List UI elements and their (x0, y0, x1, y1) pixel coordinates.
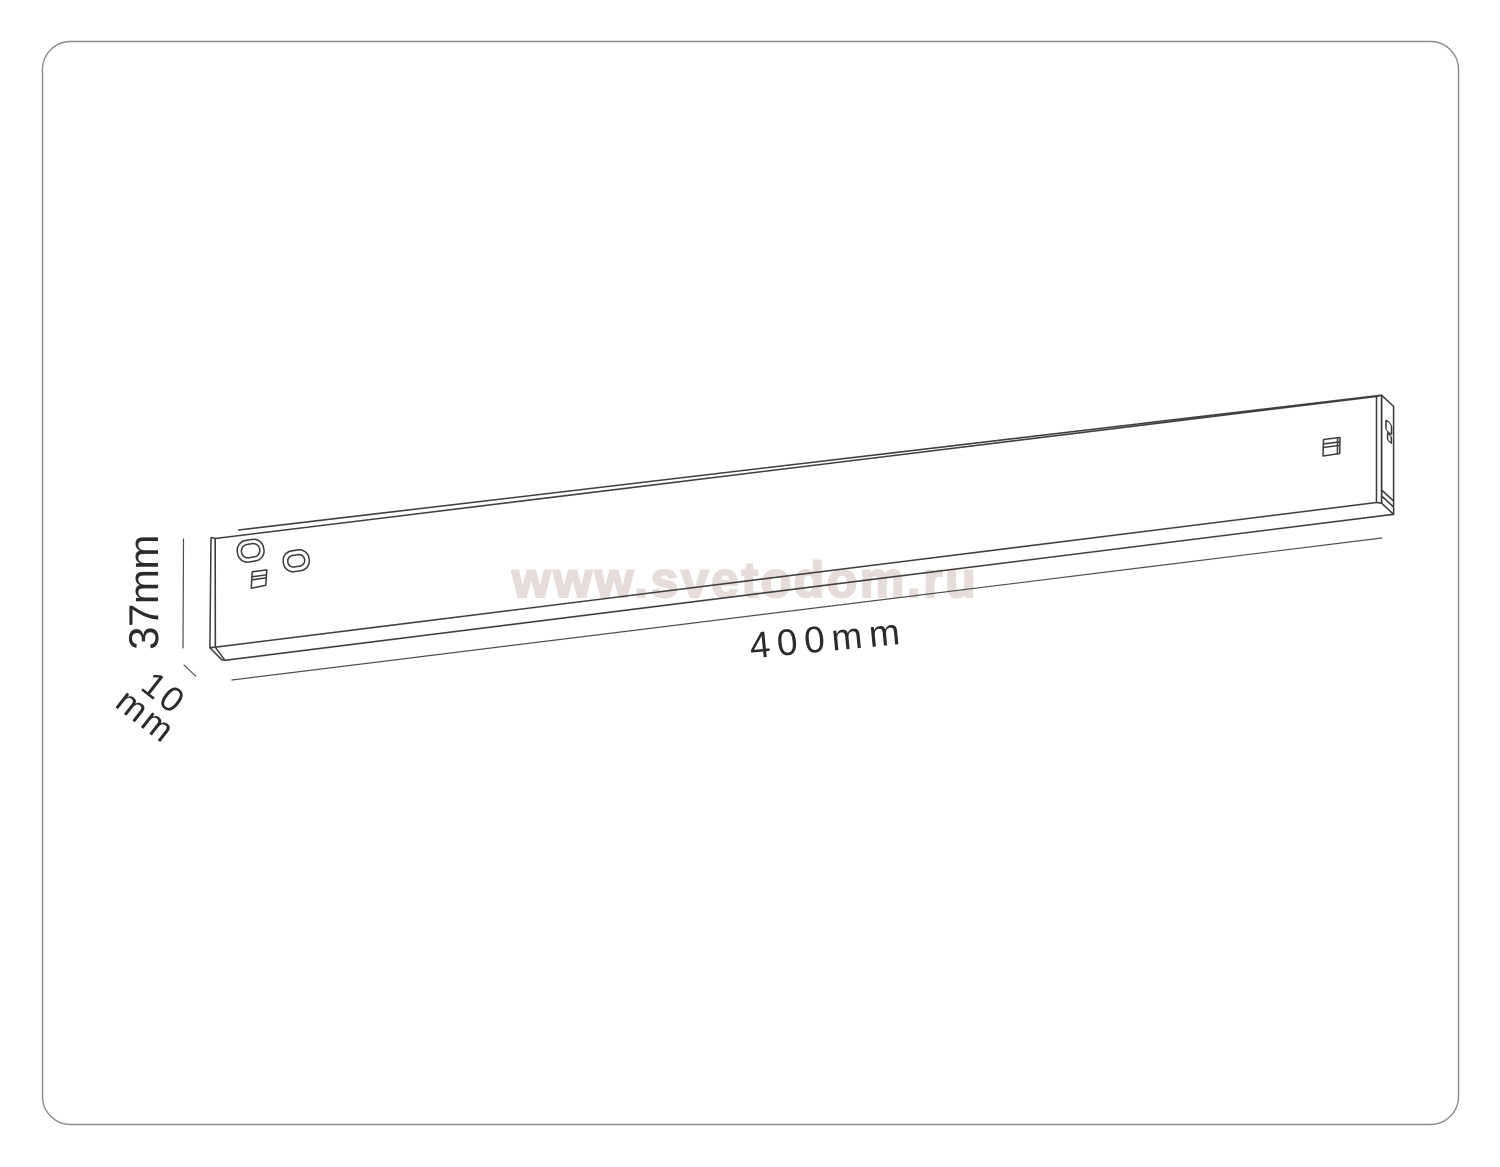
svg-text:37mm: 37mm (120, 535, 167, 650)
